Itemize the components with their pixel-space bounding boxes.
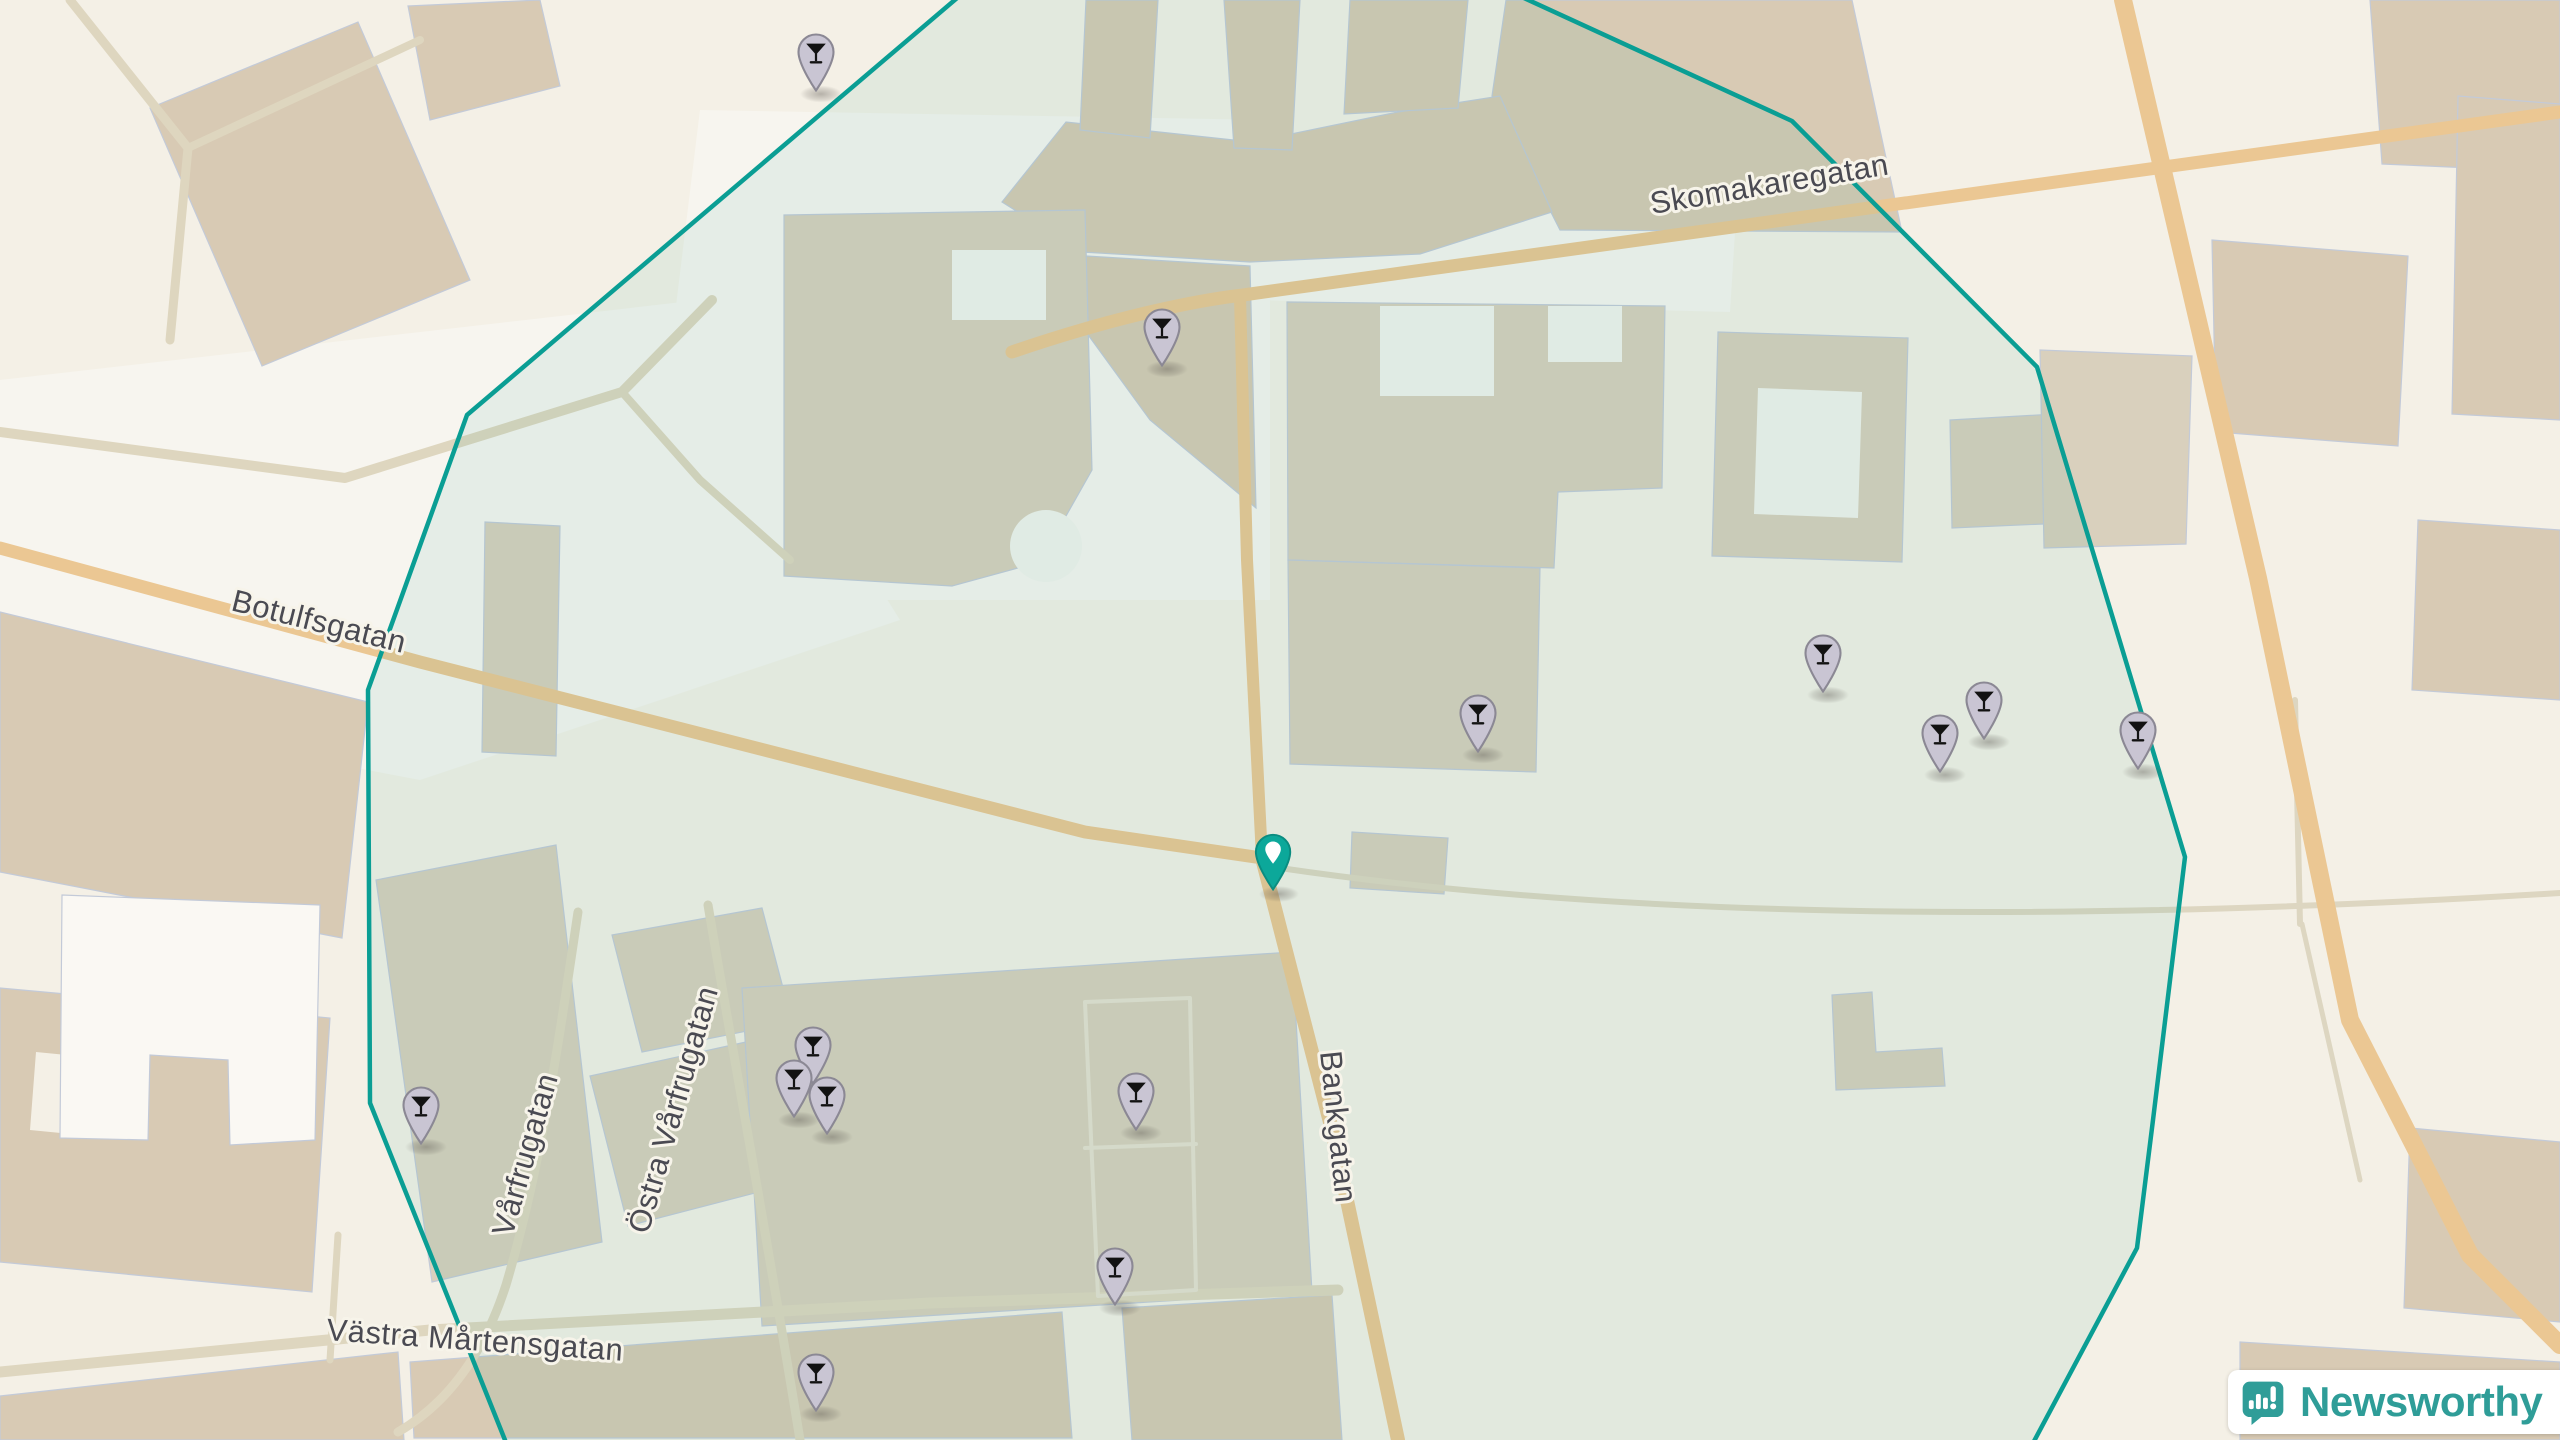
- newsworthy-logo-text: Newsworthy: [2300, 1378, 2542, 1426]
- marker-shadow: [1462, 747, 1504, 764]
- marker-shadow: [778, 1112, 820, 1129]
- marker-shadow: [1120, 1125, 1162, 1142]
- marker-shadow: [800, 86, 842, 103]
- marker-shadow: [405, 1139, 447, 1156]
- marker-shadow: [1099, 1300, 1141, 1317]
- marker-shadow: [2122, 764, 2164, 781]
- marker-shadow: [800, 1406, 842, 1423]
- map[interactable]: Skomakaregatan Botulfsgatan Vårfrugatan …: [0, 0, 2560, 1440]
- newsworthy-logo[interactable]: Newsworthy: [2228, 1370, 2560, 1434]
- marker-shadow: [1807, 687, 1849, 704]
- marker-shadow: [1924, 767, 1966, 784]
- marker-shadow: [1968, 734, 2010, 751]
- marker-shadow: [1146, 361, 1188, 378]
- map-canvas[interactable]: Skomakaregatan Botulfsgatan Vårfrugatan …: [0, 0, 2560, 1440]
- marker-shadow: [811, 1129, 853, 1146]
- bar-chart-pin-icon: [2240, 1379, 2286, 1425]
- pin-shadow: [1259, 886, 1299, 902]
